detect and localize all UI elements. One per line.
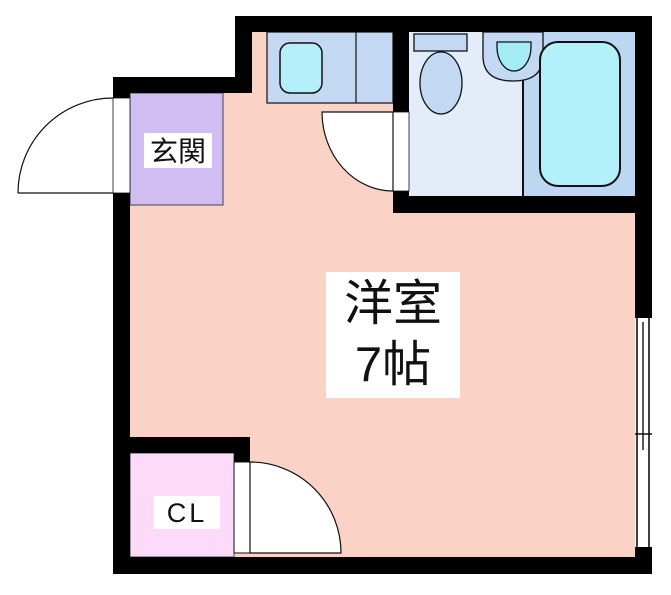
sliding-window — [635, 318, 652, 547]
wall-bathroom-left-upper — [393, 32, 409, 112]
wall-bathroom-bottom — [393, 196, 652, 213]
toilet-tank-icon — [414, 34, 467, 51]
closet-door-leaf — [234, 462, 250, 553]
entrance-door-leaf — [113, 98, 130, 193]
floorplan: 玄関 洋室 7帖 CL — [0, 0, 671, 595]
wall-left — [113, 193, 130, 557]
closet-label: CL — [167, 498, 208, 528]
toilet-icon — [420, 52, 462, 114]
entrance-door-swing-arc — [18, 98, 113, 193]
wall-bottom — [113, 557, 652, 574]
bathroom-door-leaf — [393, 112, 409, 191]
wall-closet-right-stub — [234, 437, 250, 462]
bathtub-icon — [540, 42, 620, 186]
main-room-size: 7帖 — [355, 338, 431, 392]
wall-closet-top — [113, 437, 250, 453]
wall-top — [235, 16, 652, 32]
main-room-name: 洋室 — [344, 277, 442, 331]
floorplan-canvas: 玄関 洋室 7帖 CL — [0, 0, 671, 595]
wall-left-upper — [113, 77, 130, 98]
kitchen-sink-icon — [280, 43, 322, 93]
wall-right-upper — [635, 16, 652, 318]
wall-entrance-step — [113, 77, 252, 93]
entrance-label: 玄関 — [150, 136, 206, 167]
